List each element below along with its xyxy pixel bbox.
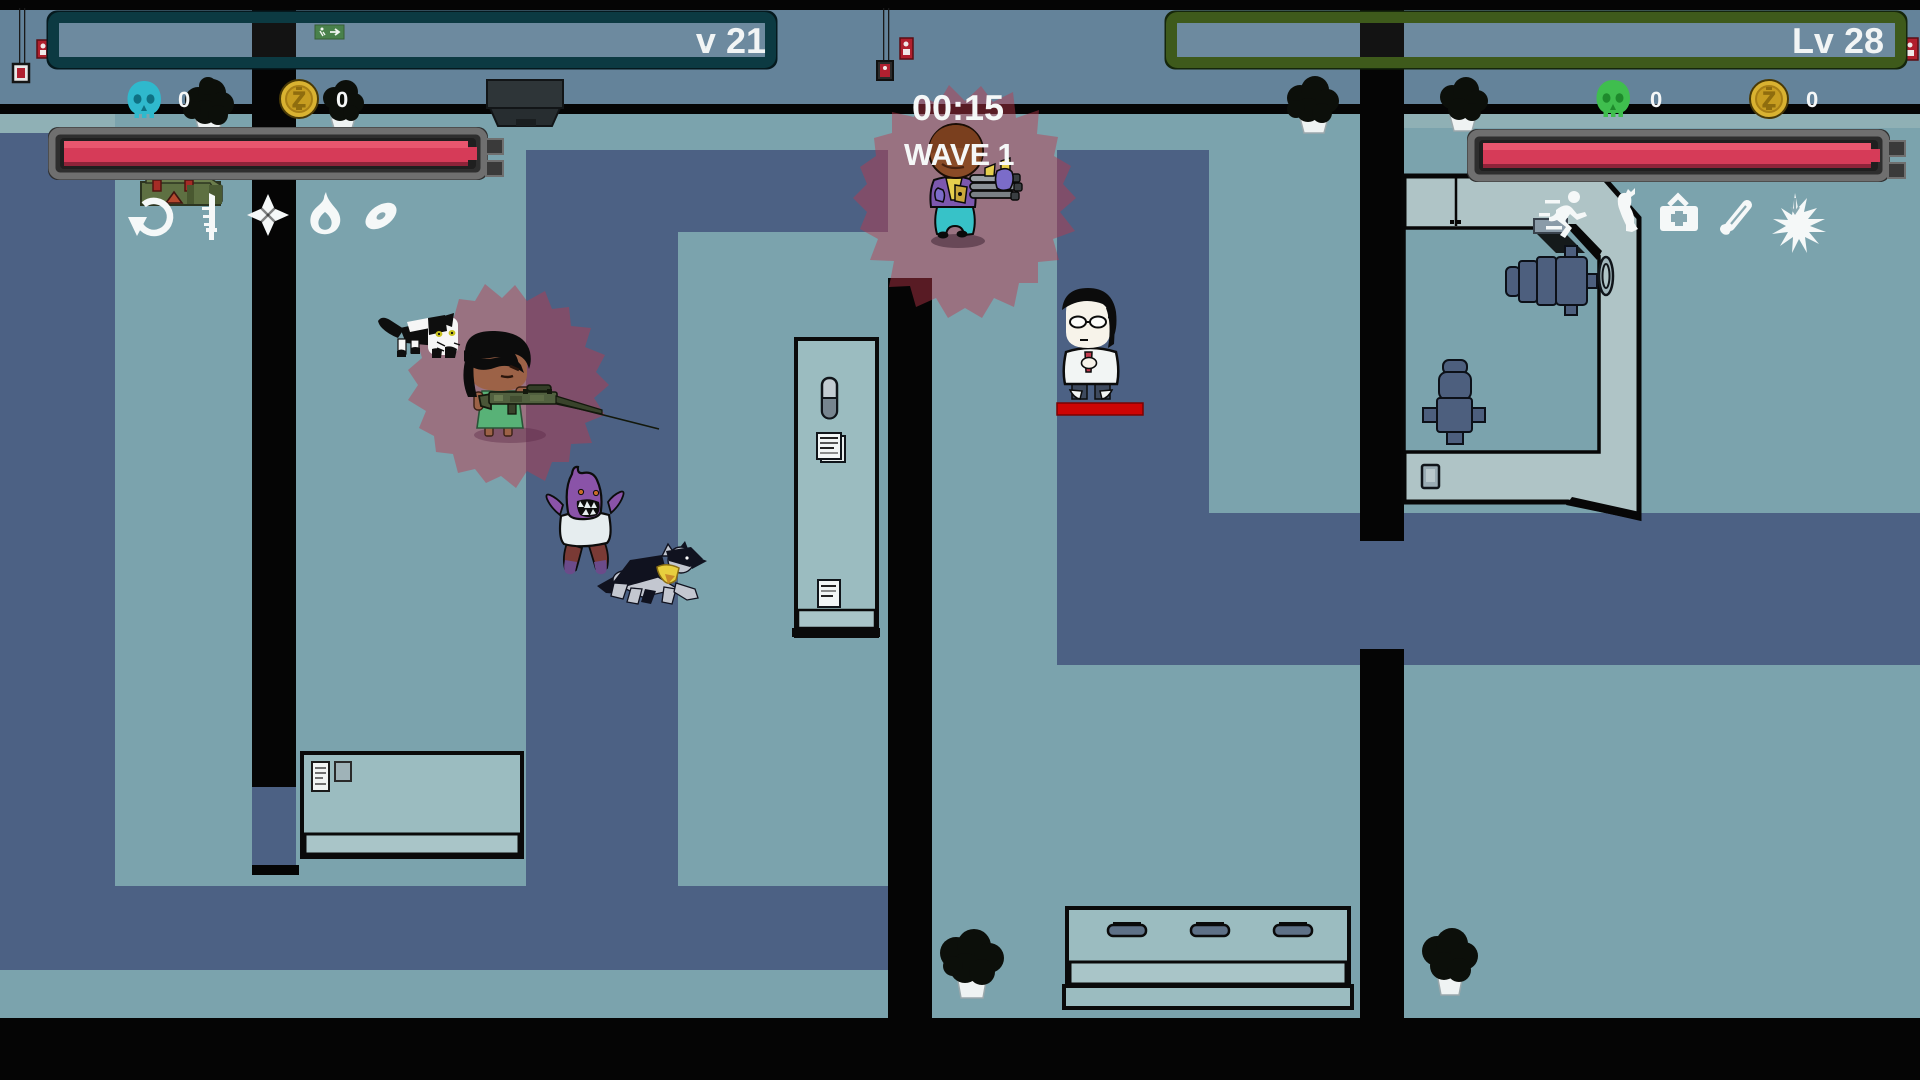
svg-text:v 21: v 21 — [696, 20, 766, 61]
svg-text:0: 0 — [1650, 87, 1662, 112]
svg-text:0: 0 — [178, 87, 190, 112]
svg-text:WAVE 1: WAVE 1 — [904, 138, 1015, 172]
svg-text:0: 0 — [1806, 87, 1818, 112]
svg-text:Lv 28: Lv 28 — [1792, 20, 1884, 61]
svg-text:0: 0 — [336, 87, 348, 112]
svg-text:00:15: 00:15 — [912, 87, 1004, 128]
